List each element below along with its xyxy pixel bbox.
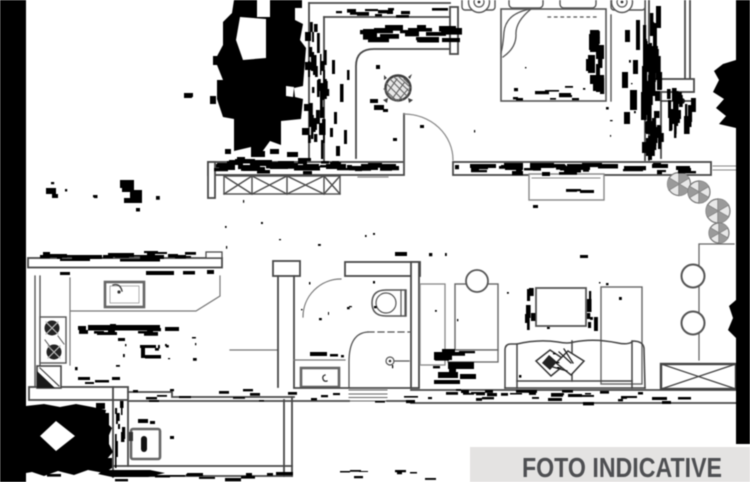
svg-text:FOTO INDICATIVE: FOTO INDICATIVE	[522, 452, 722, 482]
